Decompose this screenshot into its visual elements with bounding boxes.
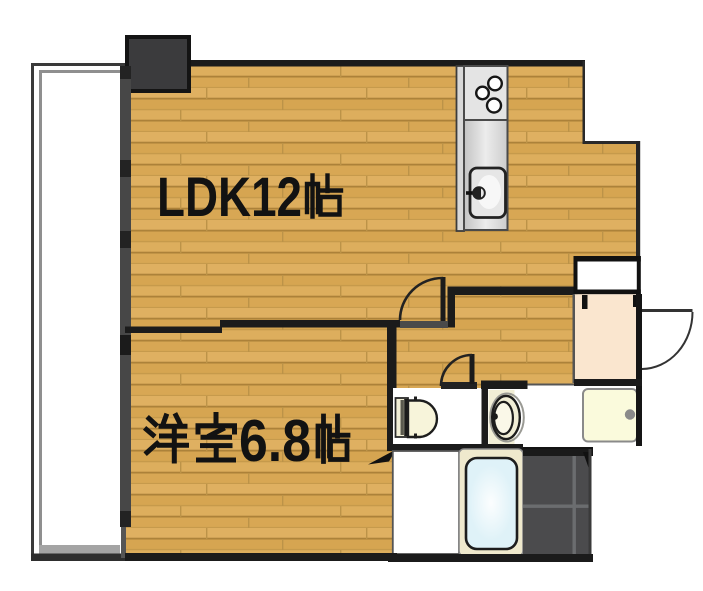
svg-text:6.8: 6.8 bbox=[239, 408, 311, 474]
svg-text:LDK12: LDK12 bbox=[157, 165, 302, 228]
